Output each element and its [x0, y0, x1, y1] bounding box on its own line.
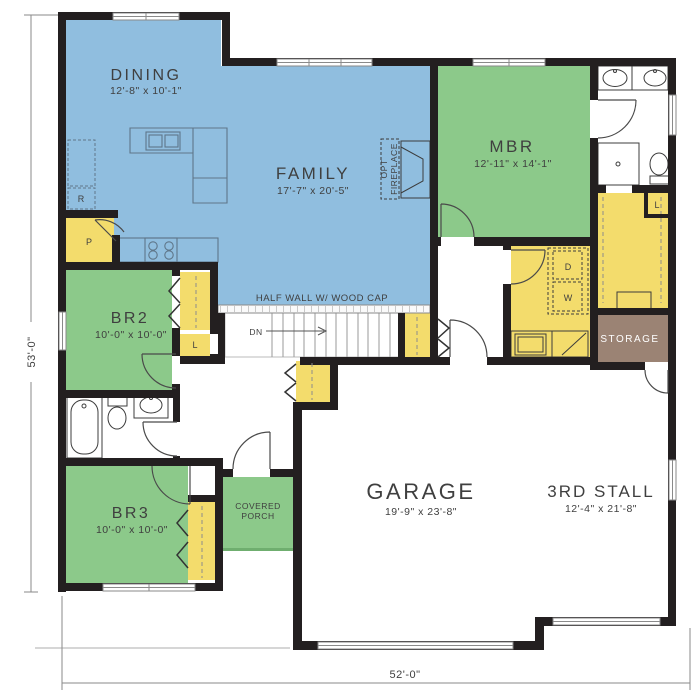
- br2-closet-area: [180, 272, 210, 330]
- dryer-label: D: [565, 262, 572, 272]
- half-wall-bar: [218, 305, 430, 313]
- linen-hall-label: L: [192, 340, 197, 350]
- overall-depth-label: 53'-0": [26, 336, 38, 367]
- dining-dims: 12'-8" x 10'-1": [110, 85, 182, 97]
- bathtub-drain: [82, 404, 86, 408]
- garage-dims: 19'-9" x 23'-8": [385, 506, 457, 518]
- br3-label: BR3: [112, 505, 151, 522]
- bathtub: [67, 396, 102, 458]
- front-door: [233, 432, 270, 469]
- linen-master-label: L: [654, 200, 659, 210]
- porch-label-2: PORCH: [241, 511, 274, 521]
- master-bath-door: [598, 100, 636, 138]
- garage-label: GARAGE: [366, 479, 475, 504]
- coat-closet-bifold: [285, 364, 296, 401]
- stall-dims: 12'-4" x 21'-8": [565, 503, 637, 515]
- porch-label-1: COVERED: [235, 501, 281, 511]
- br3-dims: 10'-0" x 10'-0": [96, 524, 168, 536]
- storage-label: STORAGE: [600, 334, 659, 345]
- pantry-label: P: [86, 237, 92, 247]
- half-wall-label: HALF WALL W/ WOOD CAP: [256, 293, 388, 304]
- fireplace-label-1: OPT: [379, 160, 389, 179]
- dining-label: DINING: [111, 67, 182, 84]
- faucet: [654, 70, 657, 73]
- walkin-closet-area: [598, 193, 668, 308]
- storage-door: [645, 370, 668, 393]
- floor-plan: DINING 12'-8" x 10'-1" FAMILY 17'-7" x 2…: [0, 0, 700, 700]
- shower-drain: [616, 162, 620, 166]
- main-bath-fixtures: [67, 393, 168, 458]
- stall-label: 3RD STALL: [547, 482, 654, 501]
- toilet-bowl: [108, 407, 126, 429]
- master-toilet-bowl: [650, 153, 668, 175]
- br2-dims: 10'-0" x 10'-0": [95, 329, 167, 341]
- master-toilet-tank: [650, 176, 669, 184]
- porch-edge: [223, 548, 293, 551]
- br2-label: BR2: [111, 310, 150, 327]
- refrigerator-label: R: [78, 194, 85, 204]
- half-wall: [218, 305, 430, 313]
- toilet-tank: [108, 397, 127, 406]
- mbr-label: MBR: [489, 137, 534, 156]
- family-label: FAMILY: [276, 164, 350, 183]
- bath-door: [143, 422, 177, 456]
- overall-width-label: 52'-0": [389, 669, 420, 681]
- floor-plan-svg: DINING 12'-8" x 10'-1" FAMILY 17'-7" x 2…: [0, 0, 700, 700]
- shower: [598, 143, 639, 185]
- hall-closet-bifold: [438, 319, 449, 357]
- faucet: [614, 70, 617, 73]
- master-bath-fixtures: [598, 66, 669, 185]
- dn-label: DN: [249, 327, 262, 337]
- garage-entry-door: [450, 320, 487, 357]
- mbr-dims: 12'-11" x 14'-1": [474, 158, 552, 170]
- coat-closet-area: [296, 361, 330, 402]
- family-dims: 17'-7" x 20'-5": [277, 185, 349, 197]
- fireplace-label-2: FIREPLACE: [389, 143, 399, 195]
- master-vanity: [598, 66, 668, 90]
- washer-label: W: [564, 293, 573, 303]
